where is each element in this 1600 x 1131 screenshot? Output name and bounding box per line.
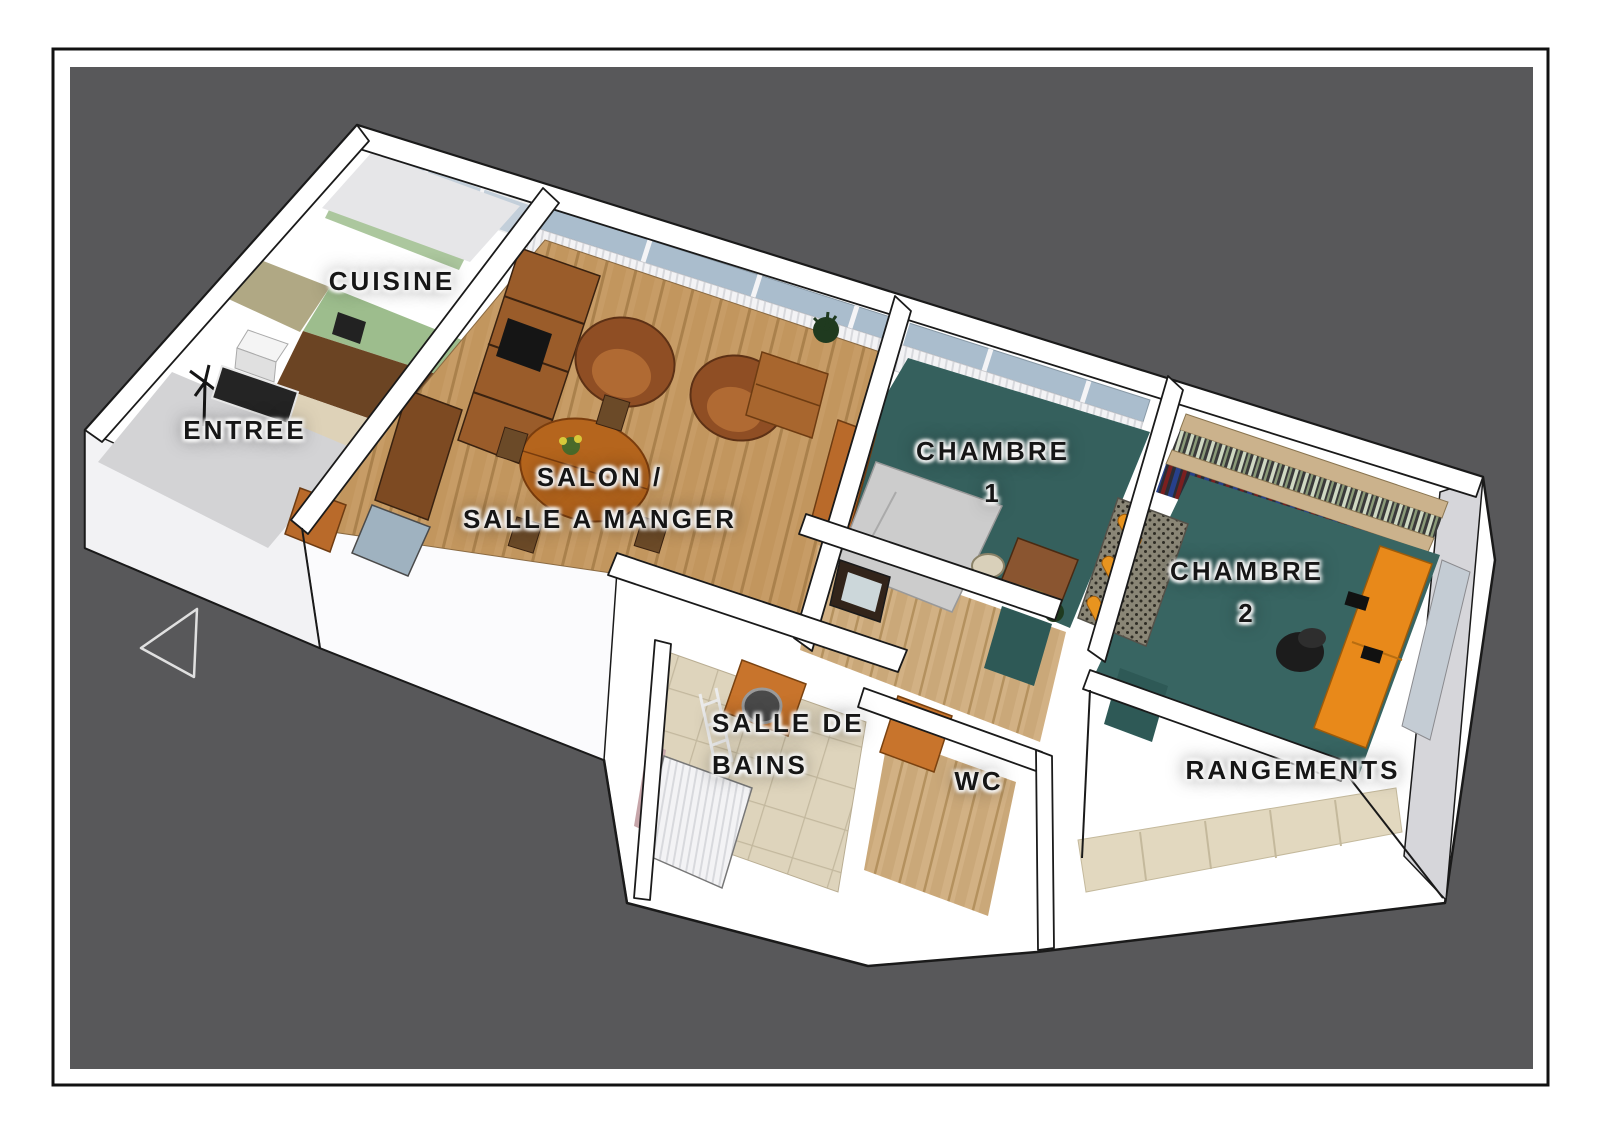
room-label-salle-de-bains-line2: BAINS	[712, 744, 865, 786]
room-label-salle-de-bains-line1: SALLE DE	[712, 702, 865, 744]
floor-plan-3d-render	[0, 0, 1600, 1131]
room-label-salon: SALON / SALLE A MANGER	[463, 456, 737, 540]
room-label-wc: WC	[954, 760, 1003, 802]
room-label-cuisine: CUISINE	[329, 260, 455, 302]
room-label-salon-line1: SALON /	[463, 456, 737, 498]
room-label-chambre-1-line2: 1	[916, 472, 1070, 514]
room-label-rangements: RANGEMENTS	[1186, 749, 1401, 791]
room-label-chambre-2-line2: 2	[1170, 592, 1324, 634]
room-label-chambre-2-line1: CHAMBRE	[1170, 550, 1324, 592]
room-label-chambre-1-line1: CHAMBRE	[916, 430, 1070, 472]
room-label-salon-line2: SALLE A MANGER	[463, 498, 737, 540]
room-label-entree: ENTREE	[183, 409, 306, 451]
room-label-chambre-2: CHAMBRE 2	[1170, 550, 1324, 634]
room-label-salle-de-bains: SALLE DE BAINS	[712, 702, 865, 786]
room-label-chambre-1: CHAMBRE 1	[916, 430, 1070, 514]
